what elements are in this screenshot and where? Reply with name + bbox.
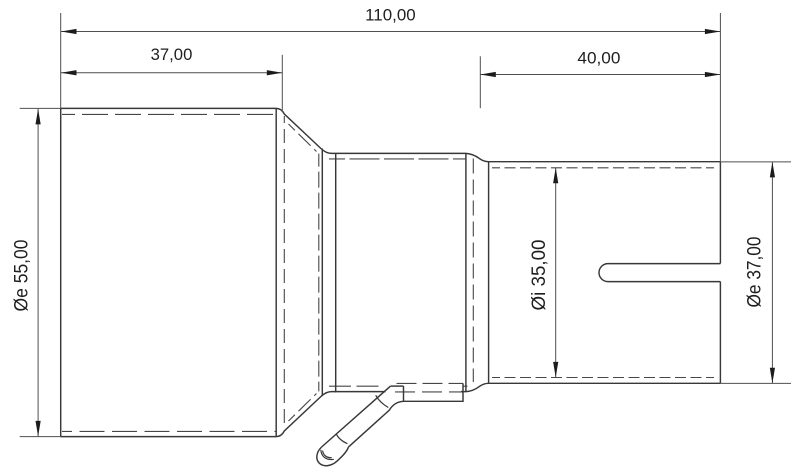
svg-text:Øe 55,00: Øe 55,00 xyxy=(12,240,33,312)
svg-text:Øe 37,00: Øe 37,00 xyxy=(745,237,766,308)
svg-text:110,00: 110,00 xyxy=(365,6,416,24)
svg-text:37,00: 37,00 xyxy=(151,46,193,64)
svg-text:40,00: 40,00 xyxy=(577,50,620,68)
svg-text:Øi 35,00: Øi 35,00 xyxy=(529,240,550,311)
